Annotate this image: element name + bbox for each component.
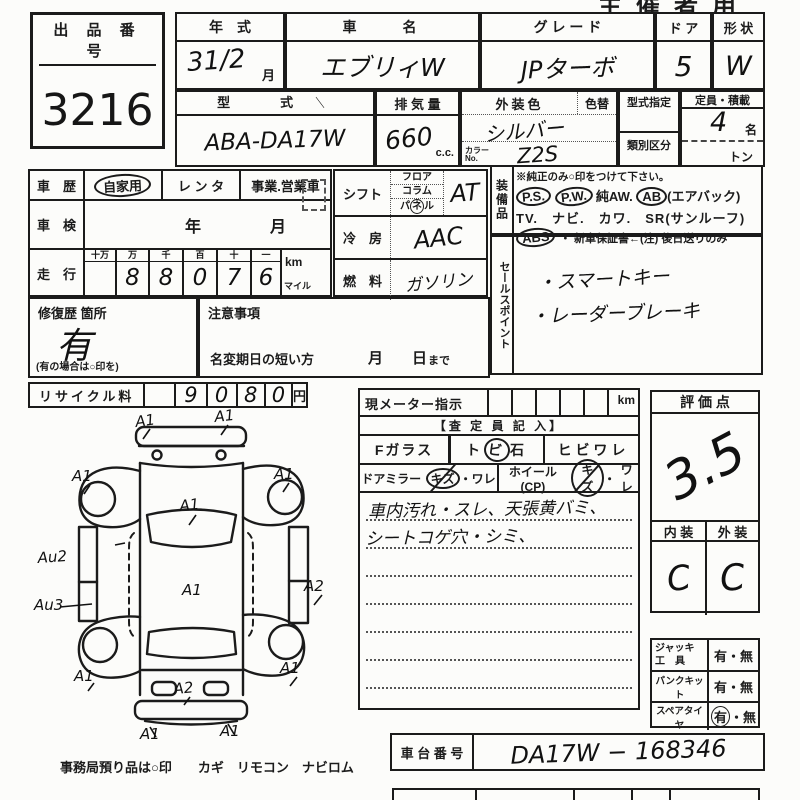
mileage-digit: 0: [184, 262, 216, 294]
displacement-value: 660: [384, 122, 434, 156]
capacity-value: 4: [710, 107, 727, 138]
equipment-ps: P.S.: [515, 186, 551, 207]
sales-point-line1: ・スマートキー: [536, 262, 670, 296]
equipment-ab-suffix: (エアバック): [667, 189, 740, 204]
shift-table: シフト フロア コラム パネル AT 冷 房 AAC 燃 料 ガソリン: [333, 169, 488, 297]
year-label: 年 式: [177, 14, 283, 42]
year-value: 31/2: [186, 44, 246, 78]
model-stray-mark: ＼: [313, 96, 333, 110]
lot-box: 出 品 番 号 3216: [30, 12, 165, 149]
grade-value: JPターボ: [481, 39, 654, 93]
annotation-rear-left-corner: A1: [139, 725, 160, 740]
mileage-digit: 8: [117, 262, 148, 294]
recycle-d1: 9: [176, 384, 207, 406]
jack-value: 有・無: [709, 640, 758, 670]
history-private: 自家用: [94, 172, 152, 198]
annotation-rear-gate: A2: [172, 678, 194, 698]
displacement-label: 排 気 量: [377, 92, 458, 116]
annotation-rear-left-wheel: A1: [73, 667, 94, 685]
equipment-label: 装備品: [492, 167, 514, 233]
office-deposit-note: 事務局預り品は○印 カギ リモコン ナビロム: [60, 757, 354, 776]
puncture-kit-value: 有・無: [709, 672, 758, 701]
year-unit: 月: [262, 65, 275, 84]
auction-sheet: 主催者用 出 品 番 号 3216 年 式 31/2 月 車 名 エブリィW グ…: [0, 0, 800, 800]
exterior-grade: C: [718, 557, 747, 600]
equipment-aw: 純AW.: [596, 189, 633, 204]
meter-label: 現メーター指示: [360, 390, 487, 415]
displacement-unit: c.c.: [436, 147, 454, 159]
equipment-line2: P.S. P.W. 純AW. AB(エアバック): [516, 186, 759, 206]
mileage-digit: 6: [252, 262, 280, 294]
carname-label: 車 名: [287, 14, 478, 42]
color-no-value: Z2S: [516, 141, 559, 168]
wheel-kizu: キズ: [571, 459, 603, 497]
ac-label: 冷 房: [335, 217, 391, 258]
shape-label: 形 状: [714, 14, 763, 42]
assessor-section-title: 【査 定 員 記 入】: [360, 417, 638, 436]
car-damage-diagram: A1 A1 A1 A1 A1 A1 Au2 Au3 A2 A1 A1 A2 A1…: [30, 405, 360, 740]
door-value: 5: [657, 42, 710, 90]
interior-label: 内 装: [652, 522, 707, 540]
sales-point-label: セールスポイント: [492, 237, 514, 373]
shift-opt-floor: フロア: [391, 171, 443, 185]
fglass-label: Fガラス: [360, 436, 451, 463]
repair-note: (有の場合は○印を): [36, 358, 119, 373]
mileage-digit: 7: [218, 262, 250, 294]
sales-point-box: セールスポイント ・スマートキー ・レーダーブレーキ: [490, 235, 763, 375]
recycle-label: リサイクル料: [30, 384, 145, 406]
carname-value: エブリィW: [287, 42, 478, 90]
wheel-row: ホイール(CP) キズ・ワレ: [499, 465, 638, 491]
caution-box: 注意事項 名変期日の短い方 月 日 まで: [198, 297, 490, 378]
inspection-year: 年: [185, 213, 201, 237]
interior-grade: C: [664, 557, 693, 600]
exterior-label: 外 装: [707, 522, 758, 540]
inspection-month: 月: [270, 213, 286, 237]
color-change-label: 色替: [578, 92, 616, 114]
name-change-made: まで: [428, 352, 450, 368]
history-label: 車 歴: [30, 171, 85, 199]
mileage-h100: 百: [184, 250, 216, 262]
score-box: 評 価 点 3.5 内 装 外 装 C C: [650, 390, 760, 613]
score-value: 3.5: [654, 421, 755, 513]
chassis-box: 車 台 番 号 DA17W − 168346: [390, 733, 765, 771]
history-rental: レ ン タ: [163, 171, 241, 199]
fuel-label: 燃 料: [335, 260, 391, 300]
recycle-unit: 円: [293, 384, 306, 406]
class-division-label: 類別区分: [620, 133, 678, 153]
tools-box: ジャッキ 工 具 有・無 パンクキット 有・無 スペアタイヤ 有・無: [650, 638, 760, 728]
equipment-ab: AB: [636, 187, 667, 206]
mileage-h10k: 万: [117, 250, 148, 262]
meter-unit: km: [607, 390, 638, 415]
name-change-month: 月: [368, 347, 383, 368]
caution-label: 注意事項: [208, 303, 488, 322]
model-label: 型 式: [217, 95, 301, 110]
mileage-unit-checkbox: [302, 179, 326, 211]
annotation-left-panel-lower: Au3: [33, 596, 63, 614]
repair-box: 修復歴 箇所 有 (有の場合は○印を): [28, 297, 198, 378]
model-value: ABA-DA17W: [176, 113, 374, 170]
door-label: ド ア: [657, 14, 710, 42]
history-table: 車 歴 自家用 レ ン タ 事業.営業車 車 検 年 月 走 行 十万 万8 千…: [28, 169, 332, 297]
year-cell: 年 式 31/2 月: [175, 12, 285, 90]
mileage-km-unit: km: [285, 255, 302, 269]
mileage-label: 走 行: [30, 250, 85, 297]
model-cell: 型 式 ＼ ABA-DA17W: [175, 90, 375, 167]
shift-label: シフト: [335, 171, 391, 215]
shape-cell: 形 状 W: [712, 12, 765, 90]
shift-opt-panel: パネル: [391, 199, 443, 214]
recycle-d3: 8: [238, 384, 266, 406]
annotation-roof-center: A1: [181, 581, 202, 599]
color-cell: 外装色 色替 シルバー カラー No. Z2S: [460, 90, 618, 167]
puncture-kit-label: パンクキット: [652, 672, 709, 701]
door-cell: ド ア 5: [655, 12, 712, 90]
grade-label: グ レ ー ド: [482, 14, 653, 42]
equipment-pw: P.W.: [554, 185, 594, 208]
annotation-front-right-corner: A1: [213, 406, 236, 426]
spare-tire-value: 有・無: [709, 703, 758, 730]
chassis-label: 車 台 番 号: [392, 735, 474, 769]
mileage-h10: 十: [218, 250, 250, 262]
inspection-label: 車 検: [30, 201, 85, 248]
lot-label: 出 品 番 号: [39, 19, 156, 66]
annotation-front-left-wheel: A1: [71, 467, 92, 485]
recycle-d4: 0: [266, 384, 293, 406]
capacity-cell: 定員・積載 4 名 トン: [680, 90, 765, 167]
chassis-value: DA17W − 168346: [473, 730, 763, 774]
ton-label: トン: [682, 142, 763, 165]
mileage-h1: 一: [252, 250, 280, 262]
spare-tire-yes-circled: 有: [711, 706, 730, 727]
assessor-notes-area: 車内汚れ・スレ、天張黄バミ、 シートコゲ穴・シミ、: [360, 493, 638, 711]
grade-cell: グ レ ー ド JPターボ: [480, 12, 655, 90]
name-change-label: 名変期日の短い方: [210, 349, 314, 368]
wheel-ware: ワレ: [616, 461, 638, 495]
mirror-ware: ワレ: [472, 470, 496, 487]
type-designation-label: 型式指定: [620, 92, 678, 133]
shift-value: AT: [443, 170, 488, 217]
annotation-front-left-corner: A1: [133, 410, 156, 431]
shape-value: W: [714, 42, 763, 90]
mirror-kizu: キズ: [426, 468, 460, 489]
carname-cell: 車 名 エブリィW: [285, 12, 480, 90]
displacement-cell: 排 気 量 660 c.c.: [375, 90, 460, 167]
lot-number: 3216: [33, 66, 162, 154]
annotation-rear-right-corner: A1: [219, 722, 240, 740]
name-change-day: 日: [412, 347, 427, 368]
assessor-note-1: 車内汚れ・スレ、天張黄バミ、: [368, 493, 606, 522]
annotation-front-right-wheel: A1: [273, 465, 294, 483]
door-mirror-row: ドアミラー キズ・ワレ: [360, 465, 499, 491]
score-label: 評 価 点: [652, 392, 758, 414]
mileage-h100k: 十万: [85, 250, 115, 262]
annotation-rear-right-wheel: A1: [279, 659, 300, 677]
equipment-note: ※純正のみ○印をつけて下さい。: [516, 169, 759, 184]
mileage-digit: 8: [150, 262, 182, 294]
annotation-right-panel: A2: [303, 577, 324, 595]
recycle-d2: 0: [208, 384, 238, 406]
sales-point-line2: ・レーダーブレーキ: [530, 296, 701, 329]
annotation-windshield: A1: [178, 495, 201, 515]
stone-chip-option: トビ石: [451, 436, 545, 463]
assessor-box: 現メーター指示 km 【査 定 員 記 入】 Fガラス トビ石 ヒ ビ ワ レ …: [358, 388, 640, 710]
type-designation-cell: 型式指定 類別区分: [618, 90, 680, 167]
mileage-h1k: 千: [150, 250, 182, 262]
bottom-partial-table: [392, 788, 760, 800]
shift-opt-column: コラム: [391, 185, 443, 199]
mileage-mile-unit: マイル: [284, 279, 311, 292]
capacity-unit: 名: [745, 121, 757, 138]
spare-tire-label: スペアタイヤ: [652, 703, 709, 730]
jack-label: ジャッキ: [652, 642, 707, 655]
equipment-box: 装備品 ※純正のみ○印をつけて下さい。 P.S. P.W. 純AW. AB(エア…: [490, 165, 763, 235]
annotation-left-panel-upper: Au2: [36, 547, 67, 567]
assessor-note-2: シートコゲ穴・シミ、: [365, 522, 535, 550]
equipment-line3: TV. ナビ. カワ. SR(サンルーフ): [516, 208, 759, 227]
